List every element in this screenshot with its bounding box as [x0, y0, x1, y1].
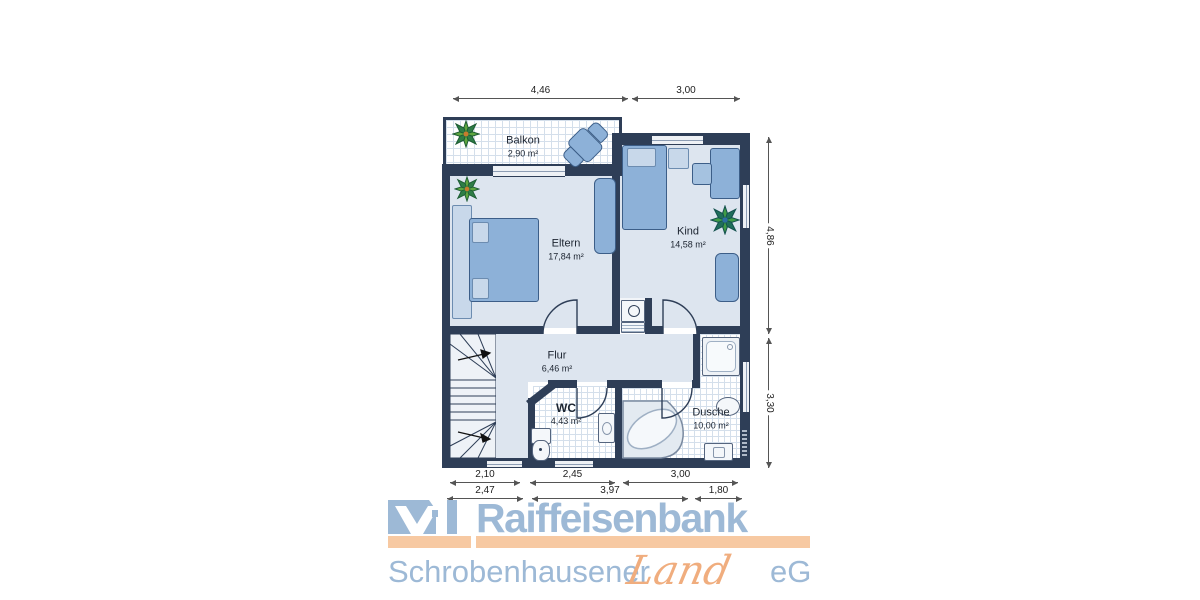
label-kind: Kind14,58 m²: [670, 226, 706, 251]
label-eltern: Eltern17,84 m²: [548, 238, 584, 263]
label-flur: Flur6,46 m²: [542, 350, 573, 375]
dim-bottom-1b: 2,45: [530, 471, 615, 485]
logo-wordmark: Raiffeisenbank: [476, 495, 747, 542]
wc-door: [577, 388, 607, 418]
label-dusche: Dusche10,00 m²: [692, 407, 729, 432]
label-balkon: Balkon2,90 m²: [506, 135, 540, 160]
logo-bar-left: [388, 536, 471, 548]
floorplan-sheet: Balkon2,90 m² Eltern17,84 m² Kind14,58 m…: [0, 0, 1200, 600]
logo-eg: eG: [770, 554, 811, 590]
raiffeisen-emblem-icon: [388, 500, 457, 534]
dim-top-2: 3,00: [632, 87, 740, 101]
dim-top-1: 4,46: [453, 87, 628, 101]
kind-door: [663, 300, 697, 334]
dim-right-1: 4,86: [765, 137, 779, 334]
dusche-door: [662, 388, 692, 418]
dim-bottom-1c: 3,00: [623, 471, 738, 485]
logo-land-script: Land: [623, 548, 735, 594]
logo-bar-right: [476, 536, 810, 548]
dim-right-2: 3,30: [765, 338, 779, 468]
label-wc: WC4,43 m²: [551, 401, 582, 427]
dim-bottom-1a: 2,10: [450, 471, 520, 485]
eltern-door: [543, 300, 577, 334]
logo-region: Schrobenhausener: [388, 554, 650, 590]
